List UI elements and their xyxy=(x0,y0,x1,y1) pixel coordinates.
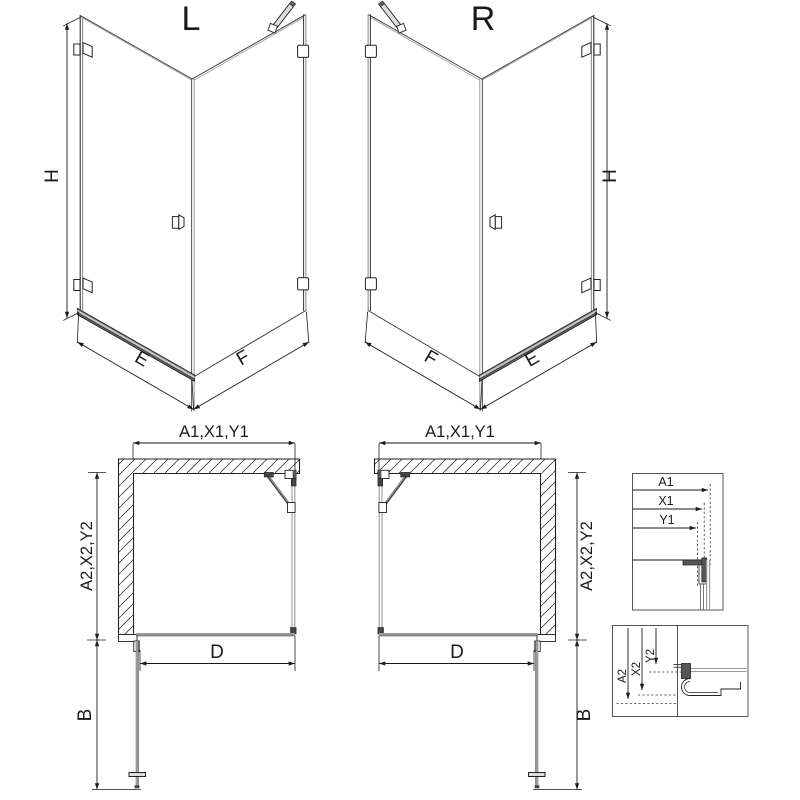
label-side-width-left: F xyxy=(233,346,254,370)
label-height-left: H xyxy=(42,169,63,183)
label-detail-y2: Y2 xyxy=(645,649,657,663)
label-plan-depth-right: A2,X2,Y2 xyxy=(578,521,596,591)
label-detail-x2: X2 xyxy=(631,662,643,676)
label-door-width-left: E xyxy=(131,347,152,372)
label-plan-width-right: A1,X1,Y1 xyxy=(425,423,495,441)
label-layer: L R H H E F E F A1,X1,Y1 A1,X1,Y1 A2,X2,… xyxy=(42,0,675,721)
label-plan-depth-left: A2,X2,Y2 xyxy=(78,521,96,591)
shower-enclosure-dimension-diagram: L R H H E F E F A1,X1,Y1 A1,X1,Y1 A2,X2,… xyxy=(0,0,800,800)
label-door-opening-left: D xyxy=(210,642,224,663)
diagram-canvas: L R H H E F E F A1,X1,Y1 A1,X1,Y1 A2,X2,… xyxy=(0,0,800,800)
label-door-opening-right: D xyxy=(450,642,464,663)
label-side-width-right: F xyxy=(420,346,441,370)
label-variant-left: L xyxy=(182,0,201,38)
iso-view-right xyxy=(365,1,611,411)
label-detail-y1: Y1 xyxy=(659,513,674,527)
detail-box-top xyxy=(633,474,724,611)
label-variant-right: R xyxy=(471,0,496,38)
iso-view-left xyxy=(64,1,310,411)
label-detail-a2: A2 xyxy=(617,669,629,683)
label-height-right: H xyxy=(600,169,621,183)
label-door-swing-left: B xyxy=(75,709,96,722)
label-door-width-right: E xyxy=(522,347,543,372)
label-door-swing-right: B xyxy=(574,709,595,722)
plan-view-right xyxy=(375,443,588,790)
wall-section-left-plan xyxy=(119,459,300,635)
label-plan-width-left: A1,X1,Y1 xyxy=(179,423,249,441)
plan-view-left xyxy=(87,443,300,790)
wall-section-right-plan xyxy=(375,459,556,635)
label-detail-x1: X1 xyxy=(658,494,673,508)
label-detail-a1: A1 xyxy=(658,475,673,489)
